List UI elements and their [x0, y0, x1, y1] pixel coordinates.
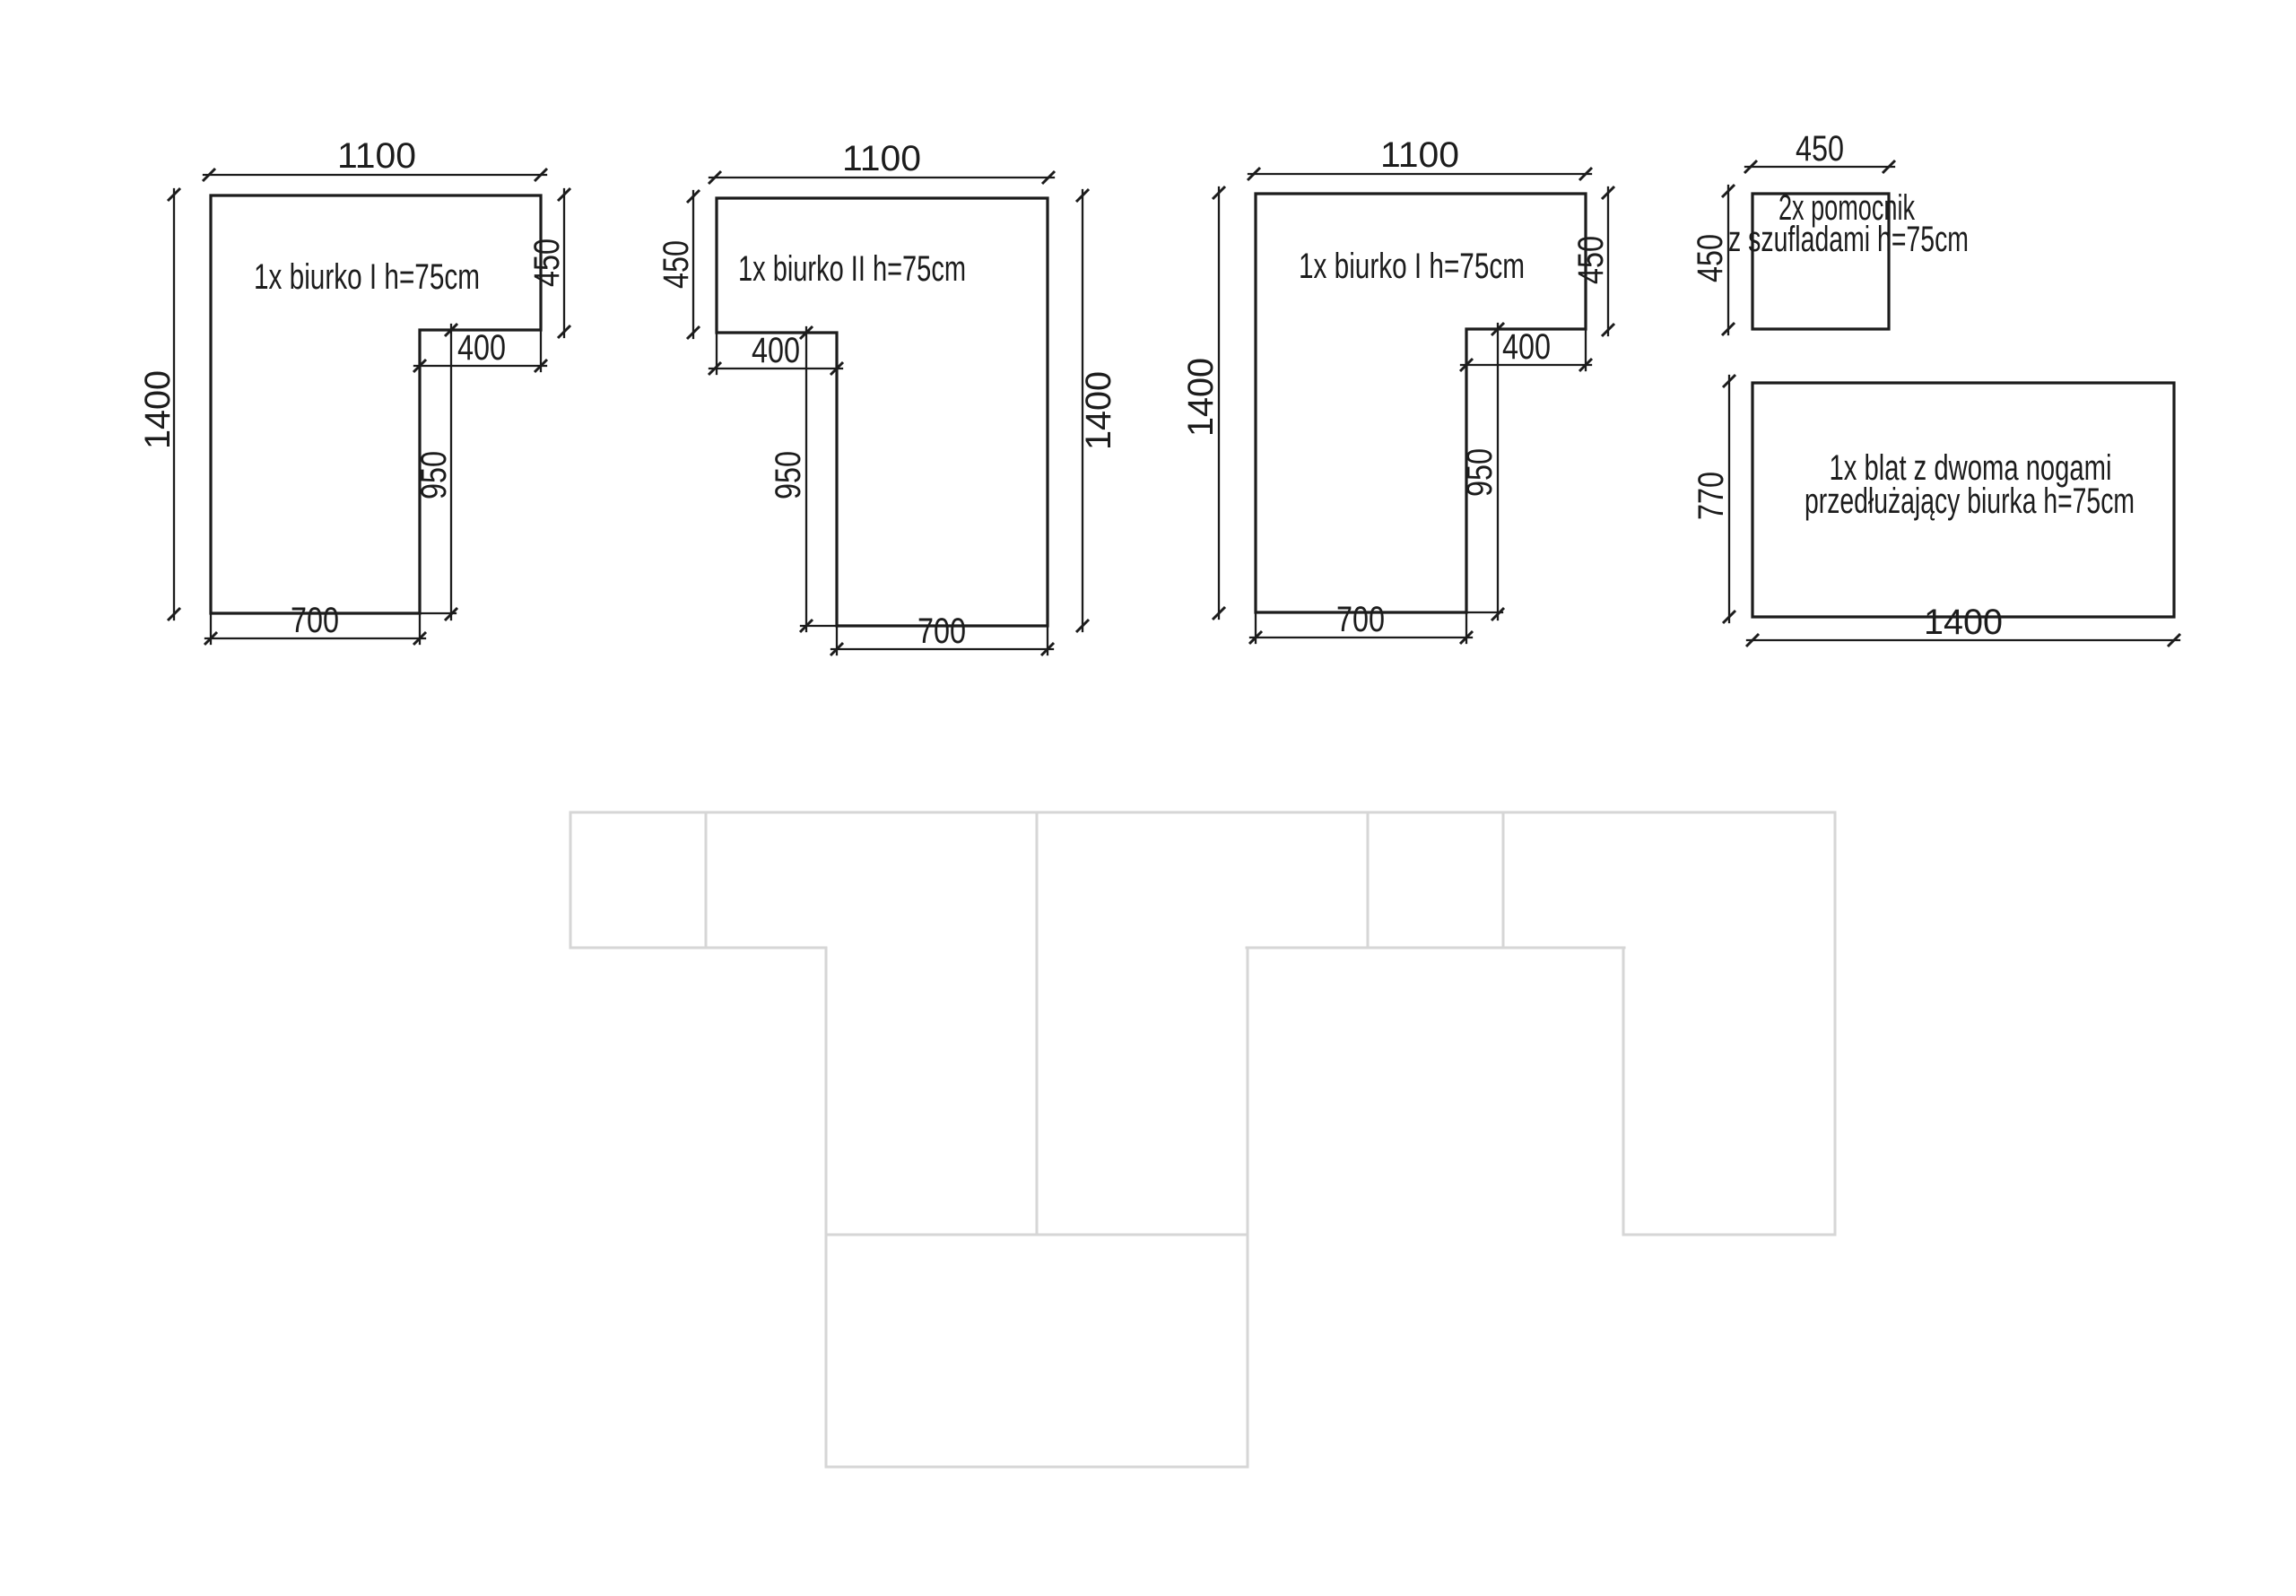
desk-2-middle-dim-label: 1100	[842, 139, 921, 178]
desk-2-middle-dim-label: 400	[752, 331, 800, 370]
drawer-helper-label: z szufladami h=75cm	[1728, 220, 1969, 259]
desk-3-right-dim-label: 400	[1502, 327, 1551, 367]
desk-3-right-label: 1x biurko I h=75cm	[1299, 247, 1525, 286]
desk-1-left-dim-label: 1100	[337, 136, 416, 176]
drawer-helper-dim-label: 450	[1691, 234, 1730, 282]
technical-drawing-page: 110014004504009507001x biurko I h=75cm11…	[0, 0, 2296, 1596]
extension-top-dim-label: 770	[1692, 472, 1731, 520]
desk-1-left-dim-label: 1400	[138, 370, 178, 449]
desk-1-left-dim-label: 950	[414, 451, 454, 499]
desk-3-right-dim-label: 700	[1336, 600, 1385, 639]
desk-2-middle-dim-label: 450	[657, 240, 696, 289]
drawer-helper-dim-label: 450	[1796, 129, 1844, 169]
desk-2-middle-dim-label: 1400	[1079, 371, 1118, 450]
desk-3-right-dim-label: 1400	[1181, 358, 1221, 437]
desk-3-right-dim-label: 450	[1571, 236, 1611, 284]
desk-2-middle-dim-label: 700	[918, 612, 966, 651]
desk-1-left-dim-label: 400	[457, 328, 506, 368]
desk-3-right-dim-label: 1100	[1380, 135, 1459, 175]
desk-2-middle-dim-label: 950	[769, 451, 808, 499]
desk-3-right-dim-label: 950	[1460, 448, 1500, 497]
desk-2-middle-label: 1x biurko II h=75cm	[738, 249, 966, 289]
extension-top-dim-label: 1400	[1924, 603, 2003, 642]
floor-plan-canvas: 110014004504009507001x biurko I h=75cm11…	[0, 0, 2296, 1596]
desk-1-left-dim-label: 450	[527, 239, 567, 287]
desk-1-left-dim-label: 700	[291, 601, 339, 640]
extension-top-label: przedłużający biurka h=75cm	[1805, 481, 2135, 521]
desk-1-left-label: 1x biurko I h=75cm	[254, 257, 480, 297]
